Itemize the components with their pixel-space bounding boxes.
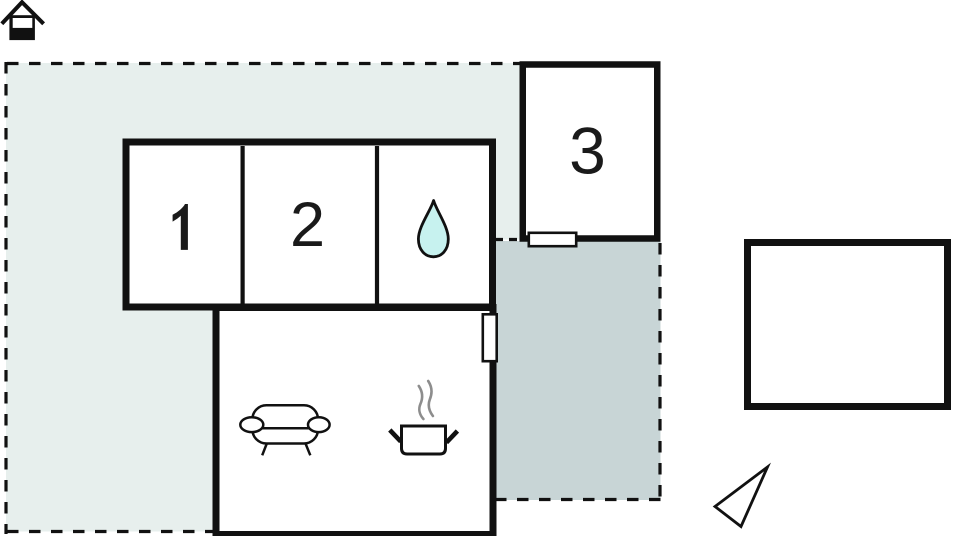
svg-text:2: 2 xyxy=(290,190,325,260)
svg-text:3: 3 xyxy=(569,114,606,188)
